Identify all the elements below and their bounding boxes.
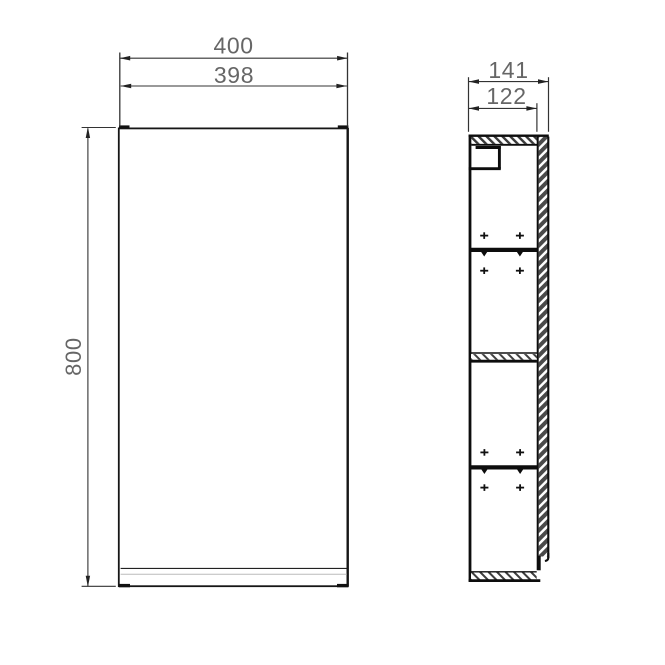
svg-text:400: 400	[214, 32, 254, 58]
svg-text:398: 398	[214, 62, 254, 88]
svg-text:141: 141	[488, 57, 528, 83]
svg-text:122: 122	[486, 83, 526, 109]
svg-text:800: 800	[61, 337, 86, 376]
